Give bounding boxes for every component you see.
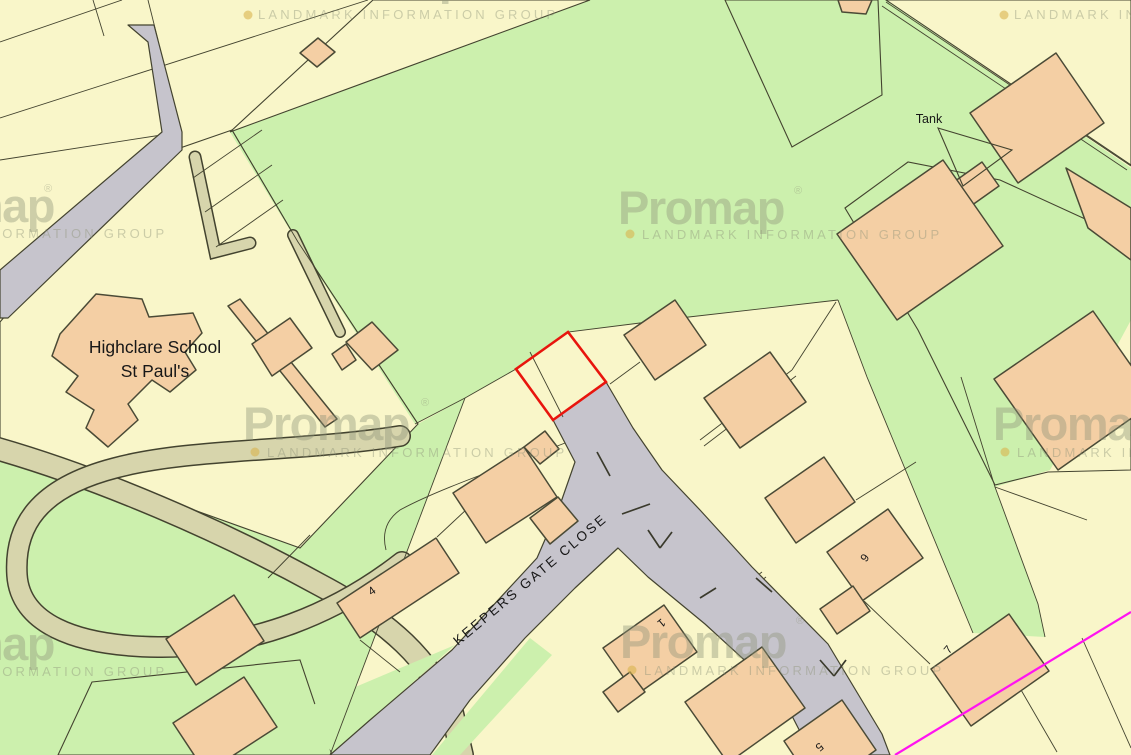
- watermark-dot-icon: [628, 666, 637, 675]
- watermark-tagline: LANDMARK INFORMATION GROUP: [258, 7, 558, 22]
- promap-map-viewport[interactable]: Highclare School St Paul's Tank KEEPERS …: [0, 0, 1131, 755]
- tank-label: Tank: [916, 112, 943, 126]
- watermark-tagline: LANDMARK INFORMATION GROUP: [642, 227, 942, 242]
- watermark-dot-icon: [1001, 448, 1010, 457]
- watermark-registered-mark: ®: [794, 185, 802, 197]
- watermark-logo: Promap: [300, 0, 466, 4]
- watermark-logo: Promap: [0, 617, 54, 670]
- watermark-dot-icon: [251, 448, 260, 457]
- watermark-registered-mark: ®: [421, 397, 429, 409]
- watermark-tagline: LANDMARK INFORMATION GROUP: [644, 663, 944, 678]
- watermark-registered-mark: ®: [796, 615, 804, 627]
- watermark-dot-icon: [244, 11, 253, 20]
- watermark-tagline: LANDMARK INFORMATION GROUP: [1014, 7, 1131, 22]
- watermark-top-right: LANDMARK INFORMATION GROUP: [1000, 7, 1131, 22]
- map-canvas[interactable]: Highclare School St Paul's Tank KEEPERS …: [0, 0, 1131, 755]
- watermark-logo: Promap: [243, 397, 409, 450]
- watermark-tagline: LANDMARK INFORMATION GROUP: [0, 226, 167, 241]
- school-label-line2: St Paul's: [121, 361, 190, 381]
- watermark-tagline: LANDMARK INFORMATION GROUP: [1017, 445, 1131, 460]
- watermark-dot-icon: [626, 230, 635, 239]
- watermark-tagline: LANDMARK INFORMATION GROUP: [267, 445, 567, 460]
- watermark-tagline: LANDMARK INFORMATION GROUP: [0, 664, 167, 679]
- watermark-dot-icon: [1000, 11, 1009, 20]
- watermark-registered-mark: ®: [44, 183, 52, 195]
- watermark-logo: Promap: [620, 615, 786, 668]
- school-label-line1: Highclare School: [89, 337, 221, 357]
- watermark-logo: Promap: [993, 397, 1131, 450]
